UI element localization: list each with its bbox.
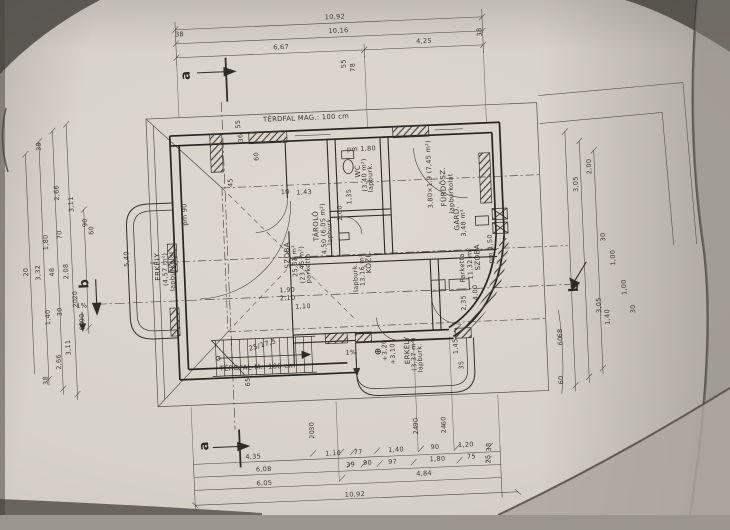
parapet-note: pm 1,80 — [347, 145, 376, 153]
dim-label: 35 — [458, 360, 465, 369]
dim-label: 3,05 — [573, 176, 580, 192]
dim-label: 3,32 — [35, 265, 42, 281]
dim-label: 2,66 — [53, 185, 60, 201]
dim-label: 2,10 — [280, 295, 296, 302]
dim-label: 39 — [346, 461, 355, 468]
room-floor: lapburk. — [416, 343, 424, 372]
room-floor: lapburk. — [326, 216, 334, 245]
dim-label: 48 — [49, 268, 56, 277]
slope-label: 1% — [76, 302, 87, 309]
dim-label: 38 — [36, 142, 43, 151]
section-marker-b-right: b — [568, 282, 581, 292]
dim-label: 1,40 — [604, 309, 611, 325]
dim-label: 10,16 — [328, 27, 348, 34]
dim-label: 75 — [467, 453, 476, 460]
dim-label: 4,84 — [416, 470, 432, 477]
parapet-note: pm 90 — [181, 203, 188, 226]
dim-label: 10 — [281, 189, 290, 196]
level-label: +3,10 — [389, 343, 396, 365]
dim-label: 6,67 — [273, 44, 289, 51]
dim-label: 1,80 — [430, 456, 446, 463]
dim-label: 1,45 — [452, 338, 459, 354]
dim-label: 38 — [476, 27, 483, 36]
dim-label: 38 — [486, 442, 493, 451]
dim-label: 10,92 — [345, 491, 365, 498]
room-floor: lapburk. — [352, 263, 360, 292]
dim-label: 10,92 — [325, 13, 345, 20]
dim-label: 2,00 — [586, 159, 593, 175]
dim-label: 1,43 — [296, 189, 312, 196]
dim-label: 20 — [23, 268, 30, 277]
dim-label: 60 — [88, 226, 95, 235]
section-marker-a-top: a — [180, 71, 193, 81]
dim-label: 4,35 — [245, 453, 261, 460]
room-floor: lapburkolat — [168, 251, 176, 291]
dim-label: 6,05 — [256, 480, 272, 487]
dim-label: 1,00 — [621, 279, 628, 295]
room-floor: parketta — [305, 253, 313, 283]
dim-label: 60 — [79, 321, 86, 330]
dim-label: 30 — [57, 307, 64, 316]
dim-label: 1,35 — [346, 189, 353, 205]
room-size: 3,48 m² — [460, 209, 468, 237]
dim-label: 3,11 — [68, 196, 75, 212]
dim-label: 38 — [175, 31, 184, 38]
balconies — [126, 191, 476, 406]
dim-label: 1,10 — [325, 450, 341, 457]
room-floor: lapburk. — [367, 163, 375, 192]
dimension-lines — [17, 4, 611, 517]
parapet-note: pm 1,50 — [487, 234, 495, 263]
dim-label: 1,40 — [388, 446, 404, 453]
drawing-tilt-group: 10,92 10,16 6,67 4,25 38 38 38 2,66 3,11… — [0, 0, 730, 530]
room-name: KÖZL. — [365, 250, 373, 273]
dim-label: 60 — [557, 336, 564, 345]
dim-label: 2,00 — [337, 205, 344, 221]
dim-label: 5,40 — [123, 251, 130, 267]
dim-label: 55 — [235, 120, 242, 129]
opening-size-label: 24 — [413, 425, 420, 434]
dim-label: 30 — [630, 304, 637, 313]
dim-label: 70 — [56, 230, 63, 239]
dim-label: 6,08 — [256, 466, 272, 473]
dim-label: 2,35 — [460, 295, 467, 311]
dim-label: 36 — [237, 134, 244, 143]
dim-label: 30 — [600, 232, 607, 241]
dim-label: 25 — [485, 454, 492, 463]
room-floor: Parketta — [459, 253, 467, 283]
dim-label: 38 — [42, 376, 49, 385]
dim-label: 45 — [227, 178, 234, 187]
dim-label: 2,66 — [56, 354, 63, 370]
opening-size-label: 24 — [441, 424, 448, 433]
dim-label: 90 — [430, 444, 439, 451]
dim-label: 1,80 — [42, 234, 49, 250]
dim-label: 60 — [558, 375, 565, 384]
dim-label: 77 — [354, 449, 363, 456]
room-name: SZOBA — [474, 244, 482, 271]
dim-label: 1,10 — [295, 303, 311, 310]
dim-label: 90 — [363, 460, 372, 467]
dim-label: 97 — [388, 459, 397, 466]
photo-of-floor-plan: { "colors": { "paper": "#d6d1c9", "ink":… — [0, 0, 730, 515]
dim-label: 1,40 — [45, 309, 52, 325]
dim-label: 78 — [350, 63, 357, 72]
dim-label: 2,08 — [63, 264, 70, 280]
dim-label: 4,25 — [416, 38, 432, 45]
dim-label: 1,00 — [610, 250, 617, 266]
level-label: +3,20 — [381, 339, 388, 361]
dim-label: 60 — [253, 152, 260, 161]
dim-label: 1,20 — [458, 441, 474, 448]
opening-size-label: 20 — [309, 430, 316, 439]
dim-label: 3,05 — [596, 297, 603, 313]
dim-label: 65 — [245, 377, 252, 386]
room-size: 11,32 m² — [466, 247, 474, 279]
dim-label: 3,11 — [65, 340, 72, 356]
section-marker-a-bottom: a — [198, 441, 211, 451]
section-marker-b-left: b — [78, 279, 91, 289]
slope-label: 1% — [345, 349, 356, 356]
dim-label: 55 — [340, 59, 347, 68]
dim-label: 4,00 — [472, 284, 479, 300]
